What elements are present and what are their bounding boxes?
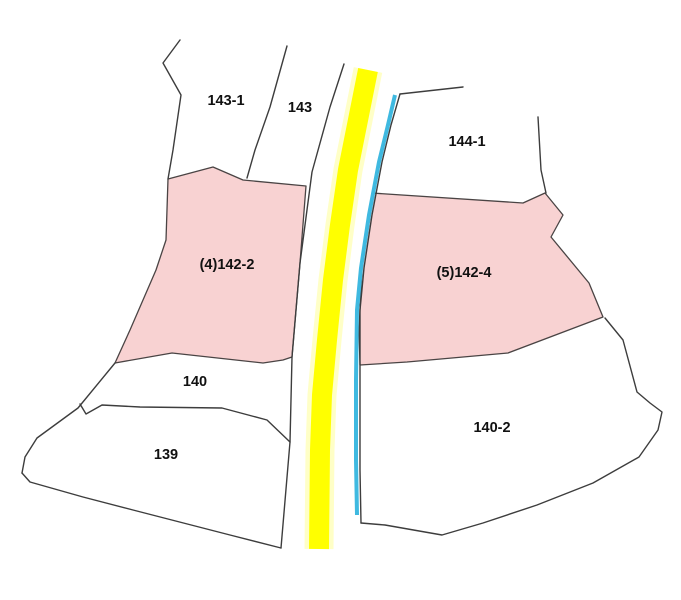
parcel-label-139: 139 — [154, 447, 178, 463]
parcel-map: 143-1143144-1(4)142-2(5)142-4140139140-2 — [0, 0, 681, 600]
boundary-143-1-143 — [247, 46, 287, 178]
boundary-west-zigzag — [163, 40, 181, 179]
boundary-144-1-east — [538, 117, 546, 193]
parcel-label-5142-4: (5)142-4 — [437, 265, 492, 281]
boundary-144-1-top — [400, 87, 463, 94]
parcel-label-143-1: 143-1 — [207, 93, 244, 109]
parcel-label-140: 140 — [183, 374, 207, 390]
cadastral-map-canvas: 143-1143144-1(4)142-2(5)142-4140139140-2 — [0, 0, 681, 600]
parcel-label-4142-2: (4)142-2 — [200, 257, 255, 273]
parcel-label-140-2: 140-2 — [473, 420, 510, 436]
parcel-label-144-1: 144-1 — [448, 134, 485, 150]
parcel-label-143: 143 — [288, 100, 312, 116]
boundary-sw-diagonal — [22, 363, 115, 473]
boundary-139-south — [22, 473, 281, 548]
boundary-140-139 — [80, 404, 290, 442]
